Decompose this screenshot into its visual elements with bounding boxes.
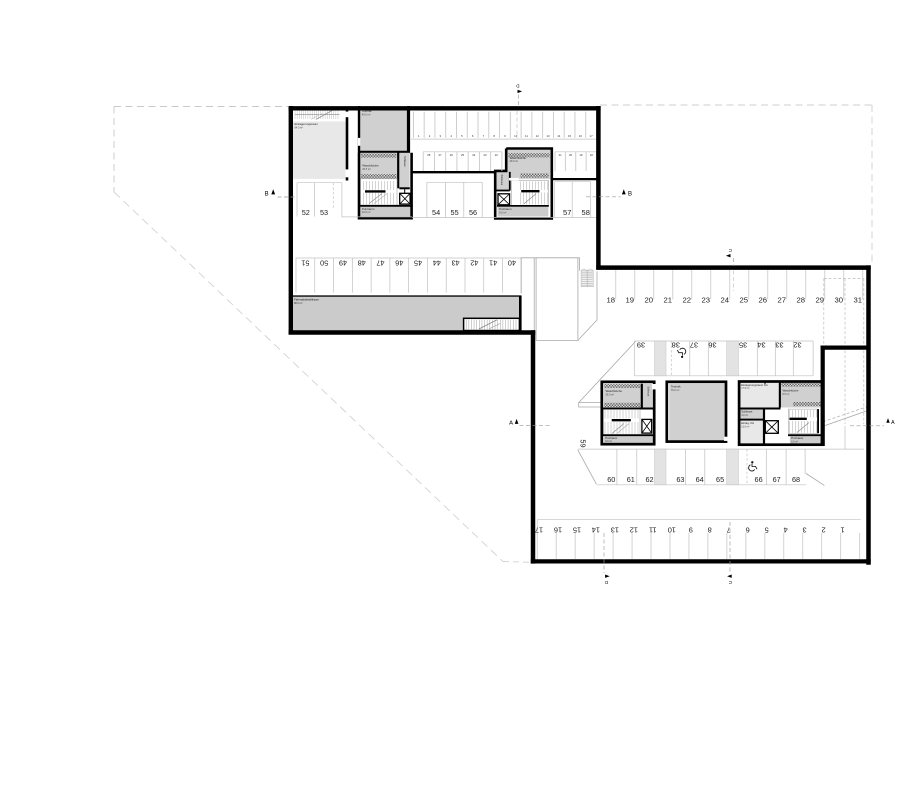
svg-text:44: 44 [433,258,441,267]
svg-text:Technik: Technik [671,385,681,389]
svg-text:26: 26 [450,153,454,157]
svg-text:25: 25 [740,296,749,305]
svg-text:Schleuse: Schleuse [500,175,504,186]
svg-text:Waschküche: Waschküche [606,389,623,393]
svg-text:50: 50 [320,258,328,267]
svg-text:11: 11 [525,134,528,138]
svg-text:4.0 m²: 4.0 m² [741,414,748,417]
svg-text:13: 13 [611,525,619,534]
svg-text:B: B [265,192,269,198]
svg-text:Waschküche: Waschküche [362,164,379,168]
svg-text:19: 19 [626,296,635,305]
svg-text:56: 56 [469,208,477,217]
svg-text:24: 24 [472,153,476,157]
svg-text:27: 27 [438,153,442,157]
svg-text:48: 48 [358,258,366,267]
svg-text:3: 3 [803,525,807,534]
svg-text:59: 59 [579,439,588,447]
svg-text:39: 39 [637,341,645,350]
svg-text:19: 19 [579,153,583,157]
svg-text:33: 33 [775,341,783,350]
svg-text:63: 63 [676,475,684,484]
svg-text:21: 21 [664,296,673,305]
svg-text:2: 2 [821,525,825,534]
svg-text:21: 21 [559,153,563,157]
svg-text:61: 61 [627,475,635,484]
svg-text:15: 15 [573,525,581,534]
svg-text:23: 23 [702,296,711,305]
svg-text:23: 23 [483,153,487,157]
svg-text:49: 49 [339,258,347,267]
svg-text:11: 11 [649,525,657,534]
svg-text:26.5 m²: 26.5 m² [510,160,519,163]
svg-text:68: 68 [792,475,800,484]
svg-text:27: 27 [778,296,787,305]
svg-text:17.5 m²: 17.5 m² [741,387,749,390]
svg-text:28: 28 [427,153,431,157]
svg-text:62: 62 [645,475,653,484]
svg-text:29: 29 [816,296,825,305]
svg-text:4: 4 [784,525,788,534]
svg-text:47: 47 [376,258,384,267]
svg-text:36: 36 [708,341,716,350]
svg-text:10: 10 [668,525,676,534]
svg-text:6: 6 [746,525,750,534]
svg-text:26.5 m²: 26.5 m² [362,168,371,171]
svg-text:13: 13 [546,134,550,138]
svg-text:32: 32 [793,341,801,350]
svg-text:40: 40 [508,258,516,267]
svg-text:13.0 m²: 13.0 m² [741,426,749,429]
svg-text:84.0 m²: 84.0 m² [362,114,371,117]
svg-text:18: 18 [607,296,616,305]
svg-text:B: B [628,192,632,198]
svg-text:98.0 m²: 98.0 m² [294,302,303,305]
svg-text:46: 46 [395,258,403,267]
svg-text:Einlag. KG: Einlag. KG [741,421,754,425]
svg-text:8.5 m²: 8.5 m² [783,393,790,396]
svg-text:60: 60 [607,475,615,484]
svg-text:51: 51 [301,258,309,267]
svg-text:10.0 m²: 10.0 m² [362,211,371,214]
svg-text:64: 64 [696,475,704,484]
svg-text:8.0 m²: 8.0 m² [605,440,612,443]
svg-text:Schleuse: Schleuse [403,156,407,167]
svg-text:17: 17 [535,525,543,534]
svg-text:67: 67 [773,475,781,484]
svg-text:84.0 m²: 84.0 m² [295,126,304,129]
svg-text:25: 25 [461,153,465,157]
svg-text:Einlagerungsraum KG: Einlagerungsraum KG [741,383,767,387]
svg-text:8: 8 [708,525,712,534]
svg-text:15: 15 [568,134,572,138]
svg-text:54: 54 [432,208,440,217]
svg-text:17: 17 [590,134,594,138]
svg-text:5: 5 [765,525,769,534]
svg-text:22: 22 [683,296,692,305]
svg-text:53: 53 [320,208,328,217]
svg-text:66: 66 [755,475,763,484]
svg-text:12: 12 [536,134,540,138]
svg-text:9: 9 [689,525,693,534]
svg-text:A: A [509,421,513,427]
svg-text:41: 41 [489,258,497,267]
svg-text:29.0 m²: 29.0 m² [606,393,615,396]
svg-text:37: 37 [690,341,698,350]
svg-text:14: 14 [592,525,600,534]
svg-text:6.0 m²: 6.0 m² [791,440,798,443]
svg-text:1: 1 [840,525,844,534]
svg-text:38: 38 [672,341,680,350]
svg-text:26: 26 [759,296,768,305]
svg-text:16: 16 [554,525,562,534]
svg-text:76.0 m²: 76.0 m² [671,389,680,392]
svg-text:52: 52 [302,208,310,217]
svg-text:35: 35 [739,341,747,350]
svg-text:A: A [891,420,895,426]
svg-text:58: 58 [582,208,590,217]
svg-text:Einlagerungsraum: Einlagerungsraum [295,122,319,126]
svg-text:Schleuse: Schleuse [647,387,650,398]
svg-text:20: 20 [569,153,573,157]
svg-text:34: 34 [757,341,765,350]
svg-text:55: 55 [451,208,459,217]
svg-text:24: 24 [721,296,730,305]
svg-text:42: 42 [470,258,478,267]
svg-text:65: 65 [716,475,724,484]
svg-text:16: 16 [579,134,583,138]
svg-text:43: 43 [452,258,460,267]
svg-text:30: 30 [835,296,844,305]
svg-text:22: 22 [495,153,499,157]
svg-text:Waschküche: Waschküche [510,156,527,160]
svg-text:45: 45 [414,258,422,267]
svg-text:14: 14 [557,134,561,138]
svg-text:20: 20 [645,296,654,305]
svg-text:Waschküche: Waschküche [783,388,799,392]
svg-text:28: 28 [797,296,806,305]
svg-text:9.5 m²: 9.5 m² [499,211,506,214]
svg-text:31: 31 [854,296,863,305]
svg-text:12: 12 [630,525,638,534]
svg-text:Fahrradabstellraum: Fahrradabstellraum [294,298,320,302]
svg-text:18: 18 [590,153,594,157]
svg-text:57: 57 [563,208,571,217]
